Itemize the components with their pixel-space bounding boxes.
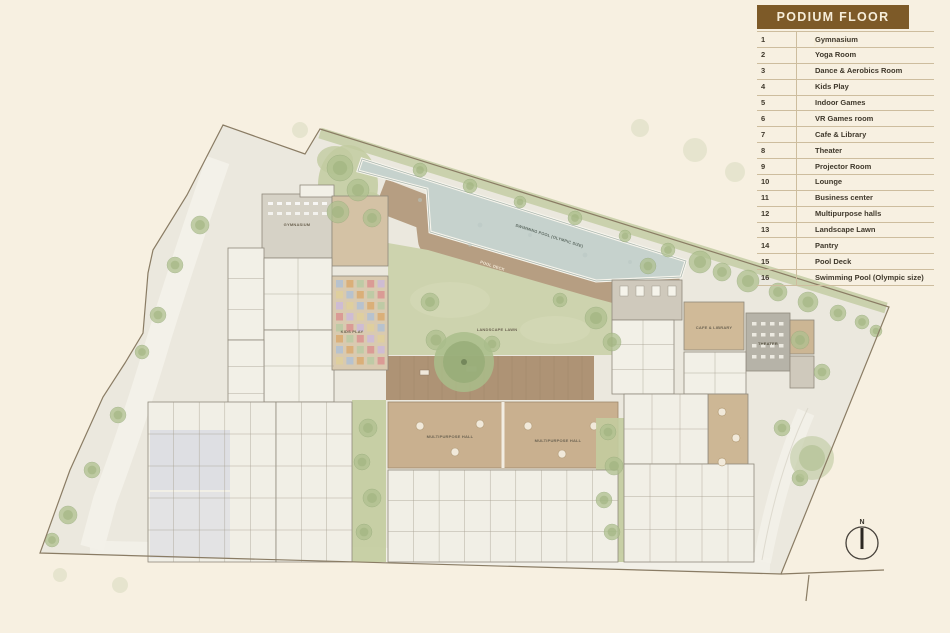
label-theater: THEATER [758, 341, 778, 346]
legend-label: Business center [796, 191, 934, 206]
legend-row: 15Pool Deck [757, 254, 934, 270]
label-kids-play: KIDS PLAY [341, 329, 364, 334]
legend-num: 1 [757, 32, 796, 47]
legend-row: 1Gymnasium [757, 32, 934, 48]
east-gray-block [790, 356, 814, 388]
legend-num: 8 [757, 143, 796, 158]
legend-row: 14Pantry [757, 238, 934, 254]
residential-west-tint-2 [150, 492, 230, 558]
residential-west-tint-1 [150, 430, 230, 490]
legend-num: 11 [757, 191, 796, 206]
legend-row: 10Lounge [757, 175, 934, 191]
north-label: N [859, 519, 864, 526]
legend-label: Kids Play [796, 80, 934, 95]
legend-row: 8Theater [757, 143, 934, 159]
legend-label: Indoor Games [796, 96, 934, 111]
legend-label: Swimming Pool (Olympic size) [796, 270, 934, 285]
legend-num: 16 [757, 270, 796, 285]
legend-num: 4 [757, 80, 796, 95]
legend-label: VR Games room [796, 111, 934, 126]
legend-num: 15 [757, 254, 796, 269]
west-rooms-block-1 [228, 248, 264, 340]
legend-label: Landscape Lawn [796, 223, 934, 238]
residential-mid-block [276, 402, 352, 562]
label-multipurpose-hall-b: MULTIPURPOSE HALL [535, 438, 582, 443]
legend-list: 1Gymnasium 2Yoga Room 3Dance & Aerobics … [757, 31, 934, 286]
legend-label: Pool Deck [796, 254, 934, 269]
legend-row: 13Landscape Lawn [757, 223, 934, 239]
label-gymnasium: GYMNASIUM [284, 222, 311, 227]
legend-num: 9 [757, 159, 796, 174]
kids-play-area [332, 276, 388, 370]
legend-label: Lounge [796, 175, 934, 190]
legend-row: 11Business center [757, 191, 934, 207]
legend-label: Cafe & Library [796, 127, 934, 142]
legend-row: 16Swimming Pool (Olympic size) [757, 270, 934, 286]
legend-row: 9Projector Room [757, 159, 934, 175]
legend-row: 6VR Games room [757, 111, 934, 127]
legend-panel: PODIUM FLOOR PLAN 1Gymnasium 2Yoga Room … [757, 5, 934, 286]
residential-east-block [624, 464, 754, 562]
legend-label: Dance & Aerobics Room [796, 64, 934, 79]
legend-row: 5Indoor Games [757, 96, 934, 112]
large-courtyard-tree [434, 332, 494, 392]
multipurpose-halls [388, 402, 618, 468]
legend-label: Multipurpose halls [796, 207, 934, 222]
legend-label: Gymnasium [796, 32, 934, 47]
legend-row: 3Dance & Aerobics Room [757, 64, 934, 80]
legend-row: 4Kids Play [757, 80, 934, 96]
legend-num: 10 [757, 175, 796, 190]
legend-label: Projector Room [796, 159, 934, 174]
legend-label: Yoga Room [796, 48, 934, 63]
legend-row: 7Cafe & Library [757, 127, 934, 143]
north-needle [861, 528, 864, 549]
legend-num: 6 [757, 111, 796, 126]
north-indicator: N [846, 519, 878, 559]
label-landscape-lawn: LANDSCAPE LAWN [477, 327, 518, 332]
legend-label: Theater [796, 143, 934, 158]
legend-num: 13 [757, 223, 796, 238]
entry-lobby-block [300, 185, 334, 197]
legend-label: Pantry [796, 238, 934, 253]
legend-num: 12 [757, 207, 796, 222]
legend-num: 5 [757, 96, 796, 111]
legend-row: 2Yoga Room [757, 48, 934, 64]
label-multipurpose-hall-a: MULTIPURPOSE HALL [427, 434, 474, 439]
label-cafe-library: CAFE & LIBRARY [696, 325, 733, 330]
legend-num: 7 [757, 127, 796, 142]
legend-title: PODIUM FLOOR PLAN [757, 5, 909, 29]
legend-row: 12Multipurpose halls [757, 207, 934, 223]
residential-south-block [388, 470, 618, 562]
podium-floor-plan-page: GYMNASIUM KIDS PLAY LANDSCAPE LAWN MULTI… [0, 0, 950, 633]
legend-num: 3 [757, 64, 796, 79]
legend-num: 14 [757, 238, 796, 253]
legend-num: 2 [757, 48, 796, 63]
